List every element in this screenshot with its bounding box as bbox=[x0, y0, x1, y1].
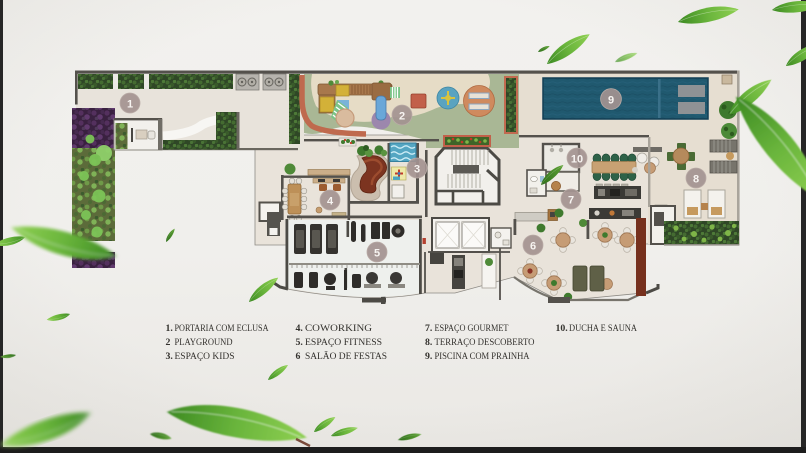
svg-text:DUCHA E SAUNA: DUCHA E SAUNA bbox=[569, 323, 637, 334]
svg-text:TERRAÇO DESCOBERTO: TERRAÇO DESCOBERTO bbox=[435, 337, 535, 348]
svg-text:7: 7 bbox=[568, 195, 574, 207]
svg-text:2: 2 bbox=[166, 337, 171, 348]
svg-text:9: 9 bbox=[608, 95, 614, 107]
svg-text:8: 8 bbox=[693, 174, 699, 186]
svg-text:5: 5 bbox=[374, 248, 380, 260]
svg-text:PISCINA COM PRAINHA: PISCINA COM PRAINHA bbox=[435, 351, 530, 362]
svg-text:6: 6 bbox=[530, 241, 536, 253]
svg-text:PLAYGROUND: PLAYGROUND bbox=[175, 337, 233, 348]
svg-text:ESPAÇO FITNESS: ESPAÇO FITNESS bbox=[305, 337, 382, 348]
svg-text:SALÃO DE FESTAS: SALÃO DE FESTAS bbox=[305, 350, 387, 362]
svg-text:1: 1 bbox=[127, 99, 133, 111]
svg-text:5.: 5. bbox=[296, 337, 304, 348]
svg-text:2: 2 bbox=[399, 111, 405, 123]
svg-text:9.: 9. bbox=[425, 351, 433, 362]
svg-text:3.: 3. bbox=[166, 351, 174, 362]
svg-text:10: 10 bbox=[571, 154, 583, 166]
svg-text:ESPAÇO GOURMET: ESPAÇO GOURMET bbox=[435, 323, 509, 334]
svg-text:4: 4 bbox=[327, 196, 334, 208]
svg-text:3: 3 bbox=[414, 164, 420, 176]
svg-text:COWORKING: COWORKING bbox=[305, 323, 372, 334]
svg-text:PORTARIA COM ECLUSA: PORTARIA COM ECLUSA bbox=[175, 323, 269, 334]
svg-text:ESPAÇO KIDS: ESPAÇO KIDS bbox=[175, 351, 235, 362]
svg-text:6: 6 bbox=[296, 351, 301, 362]
svg-text:1.: 1. bbox=[166, 323, 174, 334]
svg-text:4.: 4. bbox=[296, 323, 304, 334]
svg-text:8.: 8. bbox=[425, 337, 433, 348]
svg-text:7.: 7. bbox=[425, 323, 433, 334]
svg-text:10.: 10. bbox=[556, 323, 569, 334]
